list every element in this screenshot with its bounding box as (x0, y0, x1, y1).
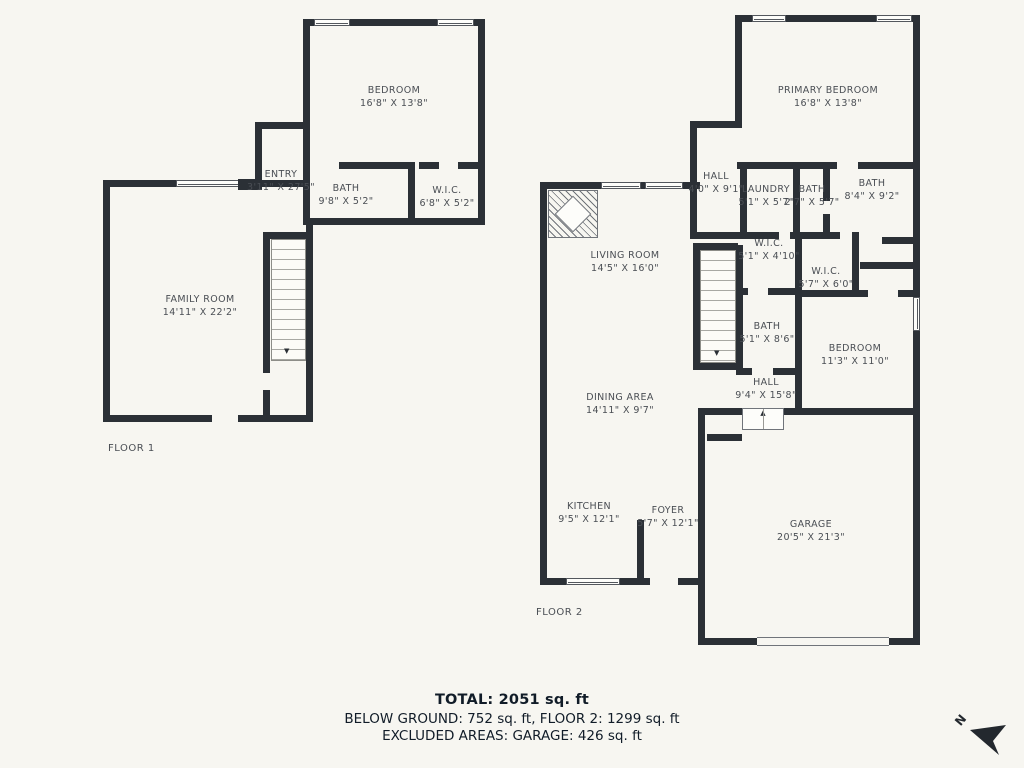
room-name: BEDROOM (821, 342, 889, 355)
room-label-family-room: FAMILY ROOM 14'11" X 22'2" (163, 293, 237, 319)
room-label-bath-small: BATH 2'7" X 5'7" (784, 183, 839, 209)
room-dims: 9'5" X 12'1" (558, 513, 620, 526)
window-symbol (601, 182, 641, 189)
room-dims: 11'3" X 11'0" (821, 355, 889, 368)
wall (860, 262, 913, 269)
wall (882, 237, 920, 244)
window-symbol (752, 15, 786, 22)
stairs-floor1 (271, 239, 306, 361)
floor2-label: FLOOR 2 (536, 607, 583, 618)
wall (858, 162, 915, 169)
wall (707, 434, 742, 441)
room-dims: 5'7" X 6'0" (798, 278, 853, 291)
wall (339, 162, 412, 169)
wall (698, 408, 742, 415)
wall (103, 180, 110, 422)
stairs-floor2 (700, 250, 736, 363)
room-dims: 20'5" X 21'3" (777, 531, 845, 544)
room-name: W.I.C. (798, 265, 853, 278)
room-dims: 5'7" X 12'1" (637, 517, 699, 530)
room-name: DINING AREA (586, 391, 654, 404)
room-label-bath-large: BATH 8'4" X 9'2" (844, 177, 899, 203)
window-symbol (913, 297, 920, 331)
room-name: FOYER (637, 504, 699, 517)
wall (263, 232, 270, 373)
room-dims: 9'4" X 15'8" (735, 389, 797, 402)
room-name: BATH (739, 320, 794, 333)
room-label-garage: GARAGE 20'5" X 21'3" (777, 518, 845, 544)
room-name: W.I.C. (419, 184, 474, 197)
room-label-primary-bedroom: PRIMARY BEDROOM 16'8" X 13'8" (778, 84, 878, 110)
step-up-arrow-icon: ▲ (760, 410, 765, 417)
wall (478, 19, 485, 225)
garage-step-symbol: ▲ (742, 408, 784, 430)
room-dims: 4'0" X 9'1" (688, 183, 743, 196)
room-name: W.I.C. (738, 237, 800, 250)
stair-landing-wall (268, 232, 307, 239)
window-symbol (645, 182, 683, 189)
north-arrow-shape (970, 725, 1006, 755)
floor1-label: FLOOR 1 (108, 443, 155, 454)
wall (693, 243, 700, 363)
room-label-hall-lower: HALL 9'4" X 15'8" (735, 376, 797, 402)
garage-door-symbol (757, 637, 889, 646)
wall (540, 182, 547, 585)
room-label-bath-f1: BATH 9'8" X 5'2" (318, 182, 373, 208)
room-dims: 5'1" X 8'6" (739, 333, 794, 346)
room-dims: 16'8" X 13'8" (360, 97, 428, 110)
wall (784, 408, 913, 415)
room-name: BATH (844, 177, 899, 190)
wall (255, 122, 310, 129)
wall (306, 218, 313, 422)
fireplace-symbol (548, 190, 598, 238)
window-symbol (566, 578, 620, 585)
wall (690, 121, 742, 128)
floor-plan-canvas: ▼ ▲ ▼ BEDROOM 16'8" X 13' (0, 0, 1024, 768)
wall (693, 363, 743, 370)
room-name: GARAGE (777, 518, 845, 531)
window-symbol (437, 19, 474, 26)
room-name: BATH (318, 182, 373, 195)
wall (408, 162, 415, 225)
room-label-bedroom-f1: BEDROOM 16'8" X 13'8" (360, 84, 428, 110)
room-name: FAMILY ROOM (163, 293, 237, 306)
room-name: HALL (688, 170, 743, 183)
room-label-wic-large: W.I.C. 5'7" X 6'0" (798, 265, 853, 291)
wall (735, 15, 742, 128)
room-label-hall-upper: HALL 4'0" X 9'1" (688, 170, 743, 196)
wall (303, 19, 310, 173)
room-dims: 5'1" X 4'10" (738, 250, 800, 263)
wall (238, 415, 313, 422)
room-name: KITCHEN (558, 500, 620, 513)
wall (773, 368, 802, 375)
room-label-bath-mid: BATH 5'1" X 8'6" (739, 320, 794, 346)
room-dims: 8'4" X 9'2" (844, 190, 899, 203)
room-label-bedroom-f2: BEDROOM 11'3" X 11'0" (821, 342, 889, 368)
wall (736, 245, 743, 370)
room-label-living-room: LIVING ROOM 14'5" X 16'0" (590, 249, 659, 275)
summary-floors: BELOW GROUND: 752 sq. ft, FLOOR 2: 1299 … (0, 711, 1024, 727)
room-dims: 3'11" X 27'5" (247, 181, 315, 194)
room-label-wic-f1: W.I.C. 6'8" X 5'2" (419, 184, 474, 210)
room-name: BATH (784, 183, 839, 196)
room-name: BEDROOM (360, 84, 428, 97)
wall (898, 290, 913, 297)
room-label-foyer: FOYER 5'7" X 12'1" (637, 504, 699, 530)
room-dims: 14'5" X 16'0" (590, 262, 659, 275)
stair-landing-wall (697, 243, 738, 250)
summary-total: TOTAL: 2051 sq. ft (0, 692, 1024, 708)
wall (458, 162, 478, 169)
room-dims: 14'11" X 22'2" (163, 306, 237, 319)
north-label: N (952, 712, 969, 729)
room-name: PRIMARY BEDROOM (778, 84, 878, 97)
room-label-dining-area: DINING AREA 14'11" X 9'7" (586, 391, 654, 417)
wall (419, 162, 439, 169)
room-dims: 9'8" X 5'2" (318, 195, 373, 208)
summary-excluded: EXCLUDED AREAS: GARAGE: 426 sq. ft (0, 728, 1024, 744)
room-dims: 2'7" X 5'7" (784, 196, 839, 209)
room-label-entry: ENTRY 3'11" X 27'5" (247, 168, 315, 194)
room-label-wic-small: W.I.C. 5'1" X 4'10" (738, 237, 800, 263)
stairs-down-arrow-icon: ▼ (284, 348, 289, 355)
room-label-kitchen: KITCHEN 9'5" X 12'1" (558, 500, 620, 526)
north-arrow-icon: N (948, 703, 1018, 763)
wall (698, 408, 705, 645)
room-name: LIVING ROOM (590, 249, 659, 262)
room-name: HALL (735, 376, 797, 389)
window-symbol (876, 15, 912, 22)
wall (303, 218, 485, 225)
room-dims: 14'11" X 9'7" (586, 404, 654, 417)
wall (103, 415, 212, 422)
stairs-down-arrow-icon: ▼ (714, 350, 719, 357)
window-symbol (314, 19, 350, 26)
room-name: ENTRY (247, 168, 315, 181)
wall (736, 288, 748, 295)
room-dims: 6'8" X 5'2" (419, 197, 474, 210)
wall (263, 390, 270, 422)
wall (737, 162, 837, 169)
room-dims: 16'8" X 13'8" (778, 97, 878, 110)
